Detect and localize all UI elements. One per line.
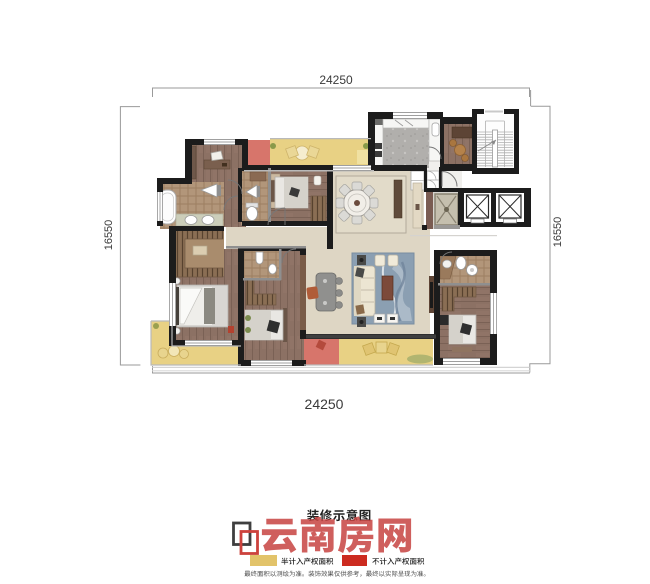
svg-text:16550: 16550 (552, 217, 564, 248)
svg-text:24250: 24250 (319, 73, 353, 87)
svg-text:16550: 16550 (103, 220, 115, 251)
svg-text:24250: 24250 (305, 396, 344, 412)
